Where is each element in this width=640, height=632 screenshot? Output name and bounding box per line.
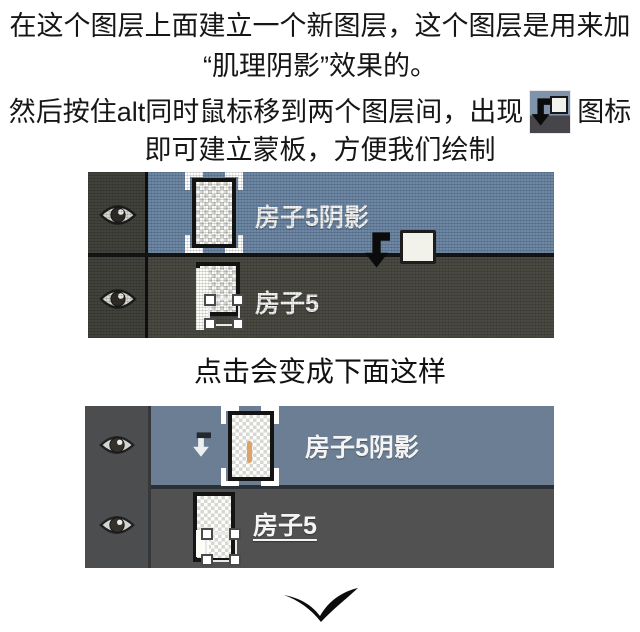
row-divider [85, 485, 554, 489]
column-divider [148, 406, 151, 568]
row-divider-eyecol [88, 253, 148, 257]
eye-icon[interactable] [99, 286, 137, 312]
layer-thumbnail-shadow[interactable] [192, 178, 236, 248]
clip-arrow-icon [531, 98, 551, 126]
instruction-line-2: “肌理阴影”效果的。 [0, 46, 640, 86]
clipping-cursor-arrow-icon [364, 232, 390, 268]
layer-name[interactable]: 房子5 [255, 284, 319, 320]
tutorial-image: 在这个图层上面建立一个新图层，这个图层是用来加 “肌理阴影”效果的。 然后按住a… [0, 0, 640, 632]
layer-thumbnail-shadow[interactable] [228, 411, 274, 481]
layer-name[interactable]: 房子5阴影 [305, 428, 419, 464]
row-divider [88, 253, 554, 257]
layer-row-house5[interactable] [88, 257, 554, 338]
clipping-indicator-arrow-icon [191, 432, 211, 460]
eye-icon[interactable] [99, 202, 137, 228]
layer-name[interactable]: 房子5 [253, 506, 317, 542]
layers-panel-after: 房子5阴影 房子5 [85, 406, 554, 568]
instruction-line-4: 即可建立蒙板，方便我们绘制 [0, 130, 640, 170]
painted-shadow-mark [247, 441, 252, 463]
instruction-line-3-text: 然后按住alt同时鼠标移到两个图层间，出现 [9, 92, 524, 132]
caption-text: 点击会变成下面这样 [0, 350, 640, 390]
layer-name[interactable]: 房子5阴影 [255, 198, 369, 234]
visibility-column [85, 406, 148, 568]
clipping-cursor-square-icon [400, 230, 436, 264]
instruction-line-1: 在这个图层上面建立一个新图层，这个图层是用来加 [0, 6, 640, 46]
clipping-mask-cursor-icon [529, 90, 571, 134]
instruction-line-3-suffix: 图标 [577, 92, 631, 132]
clip-square-icon [550, 96, 568, 114]
continue-down-chevron-icon [283, 587, 359, 623]
transform-handles [208, 298, 240, 326]
eye-icon[interactable] [99, 512, 135, 538]
layers-panel-before: 房子5阴影 房子5 [88, 172, 554, 338]
layer-row-house5[interactable] [85, 489, 554, 568]
instruction-line-3: 然后按住alt同时鼠标移到两个图层间，出现 图标 [0, 88, 640, 136]
eye-icon[interactable] [99, 432, 135, 458]
transform-handles [205, 532, 237, 562]
